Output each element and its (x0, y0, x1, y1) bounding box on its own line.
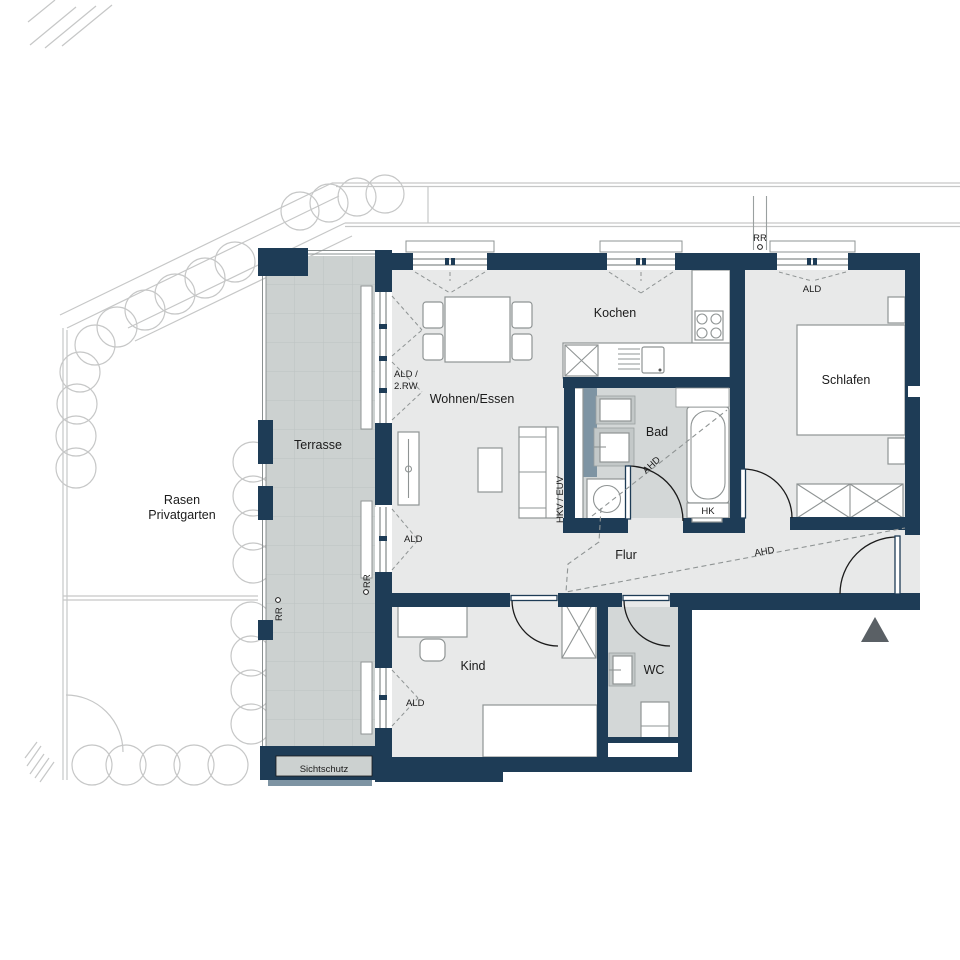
dining-table (445, 297, 510, 362)
label-hkv-euv: HKV / EUV (555, 475, 566, 523)
room-label-wohnen: Wohnen/Essen (430, 392, 515, 406)
wardrobe-schlafen (797, 484, 903, 518)
label-ald-2rw-2: 2.RW (394, 381, 418, 392)
label-ald-west: ALD (404, 534, 423, 545)
wc-door-leaf (623, 596, 669, 601)
wc-toilet (641, 702, 669, 738)
bath-door-leaf (626, 466, 631, 519)
entrance-door-leaf (895, 536, 900, 594)
label-ald-2rw-1: ALD / (394, 369, 418, 380)
hedge-bottom (72, 745, 248, 785)
room-label-bad: Bad (646, 425, 668, 439)
wall-niche (908, 386, 920, 397)
toilet-bad (600, 399, 631, 421)
room-label-schlafen: Schlafen (822, 373, 871, 387)
bathtub (687, 407, 729, 503)
rr-drain-top (758, 245, 763, 250)
label-rr-top: RR (753, 233, 767, 244)
rr-drain-terrace (364, 590, 369, 595)
nightstand (888, 438, 905, 464)
nightstand (888, 297, 905, 323)
coffee-table (478, 448, 502, 492)
floorplan-page: Terrasse Rasen Privatgarten Wohnen/Essen… (0, 0, 960, 960)
label-ald-kind: ALD (406, 698, 425, 709)
wc-niche (608, 743, 678, 757)
room-label-kochen: Kochen (594, 306, 636, 320)
label-hk: HK (701, 506, 715, 517)
label-rr-left: RR (274, 607, 285, 621)
bedroom-door-leaf (741, 469, 746, 518)
child-door-leaf (511, 596, 557, 601)
rr-drain-left (276, 598, 281, 603)
label-sichtschutz: Sichtschutz (300, 764, 349, 775)
room-label-kind: Kind (460, 659, 485, 673)
entrance-marker-triangle (861, 617, 889, 642)
room-label-flur: Flur (615, 548, 637, 562)
terrace-grid (266, 256, 376, 748)
label-ald-schlafen: ALD (803, 284, 822, 295)
room-label-wc: WC (644, 663, 665, 677)
room-label-privatgarten: Privatgarten (148, 508, 215, 522)
privacy-screen-bar (268, 780, 372, 786)
bath-niche (676, 388, 729, 407)
room-label-terrasse: Terrasse (294, 438, 342, 452)
desk (398, 602, 467, 637)
desk-chair (420, 639, 445, 661)
room-label-rasen: Rasen (164, 493, 200, 507)
hedge-street (75, 242, 255, 365)
radiator-bar (692, 518, 722, 522)
bed-single (483, 705, 597, 757)
floorplan-drawing: Terrasse Rasen Privatgarten Wohnen/Essen… (0, 0, 960, 960)
label-rr-terrace: RR (362, 574, 373, 588)
